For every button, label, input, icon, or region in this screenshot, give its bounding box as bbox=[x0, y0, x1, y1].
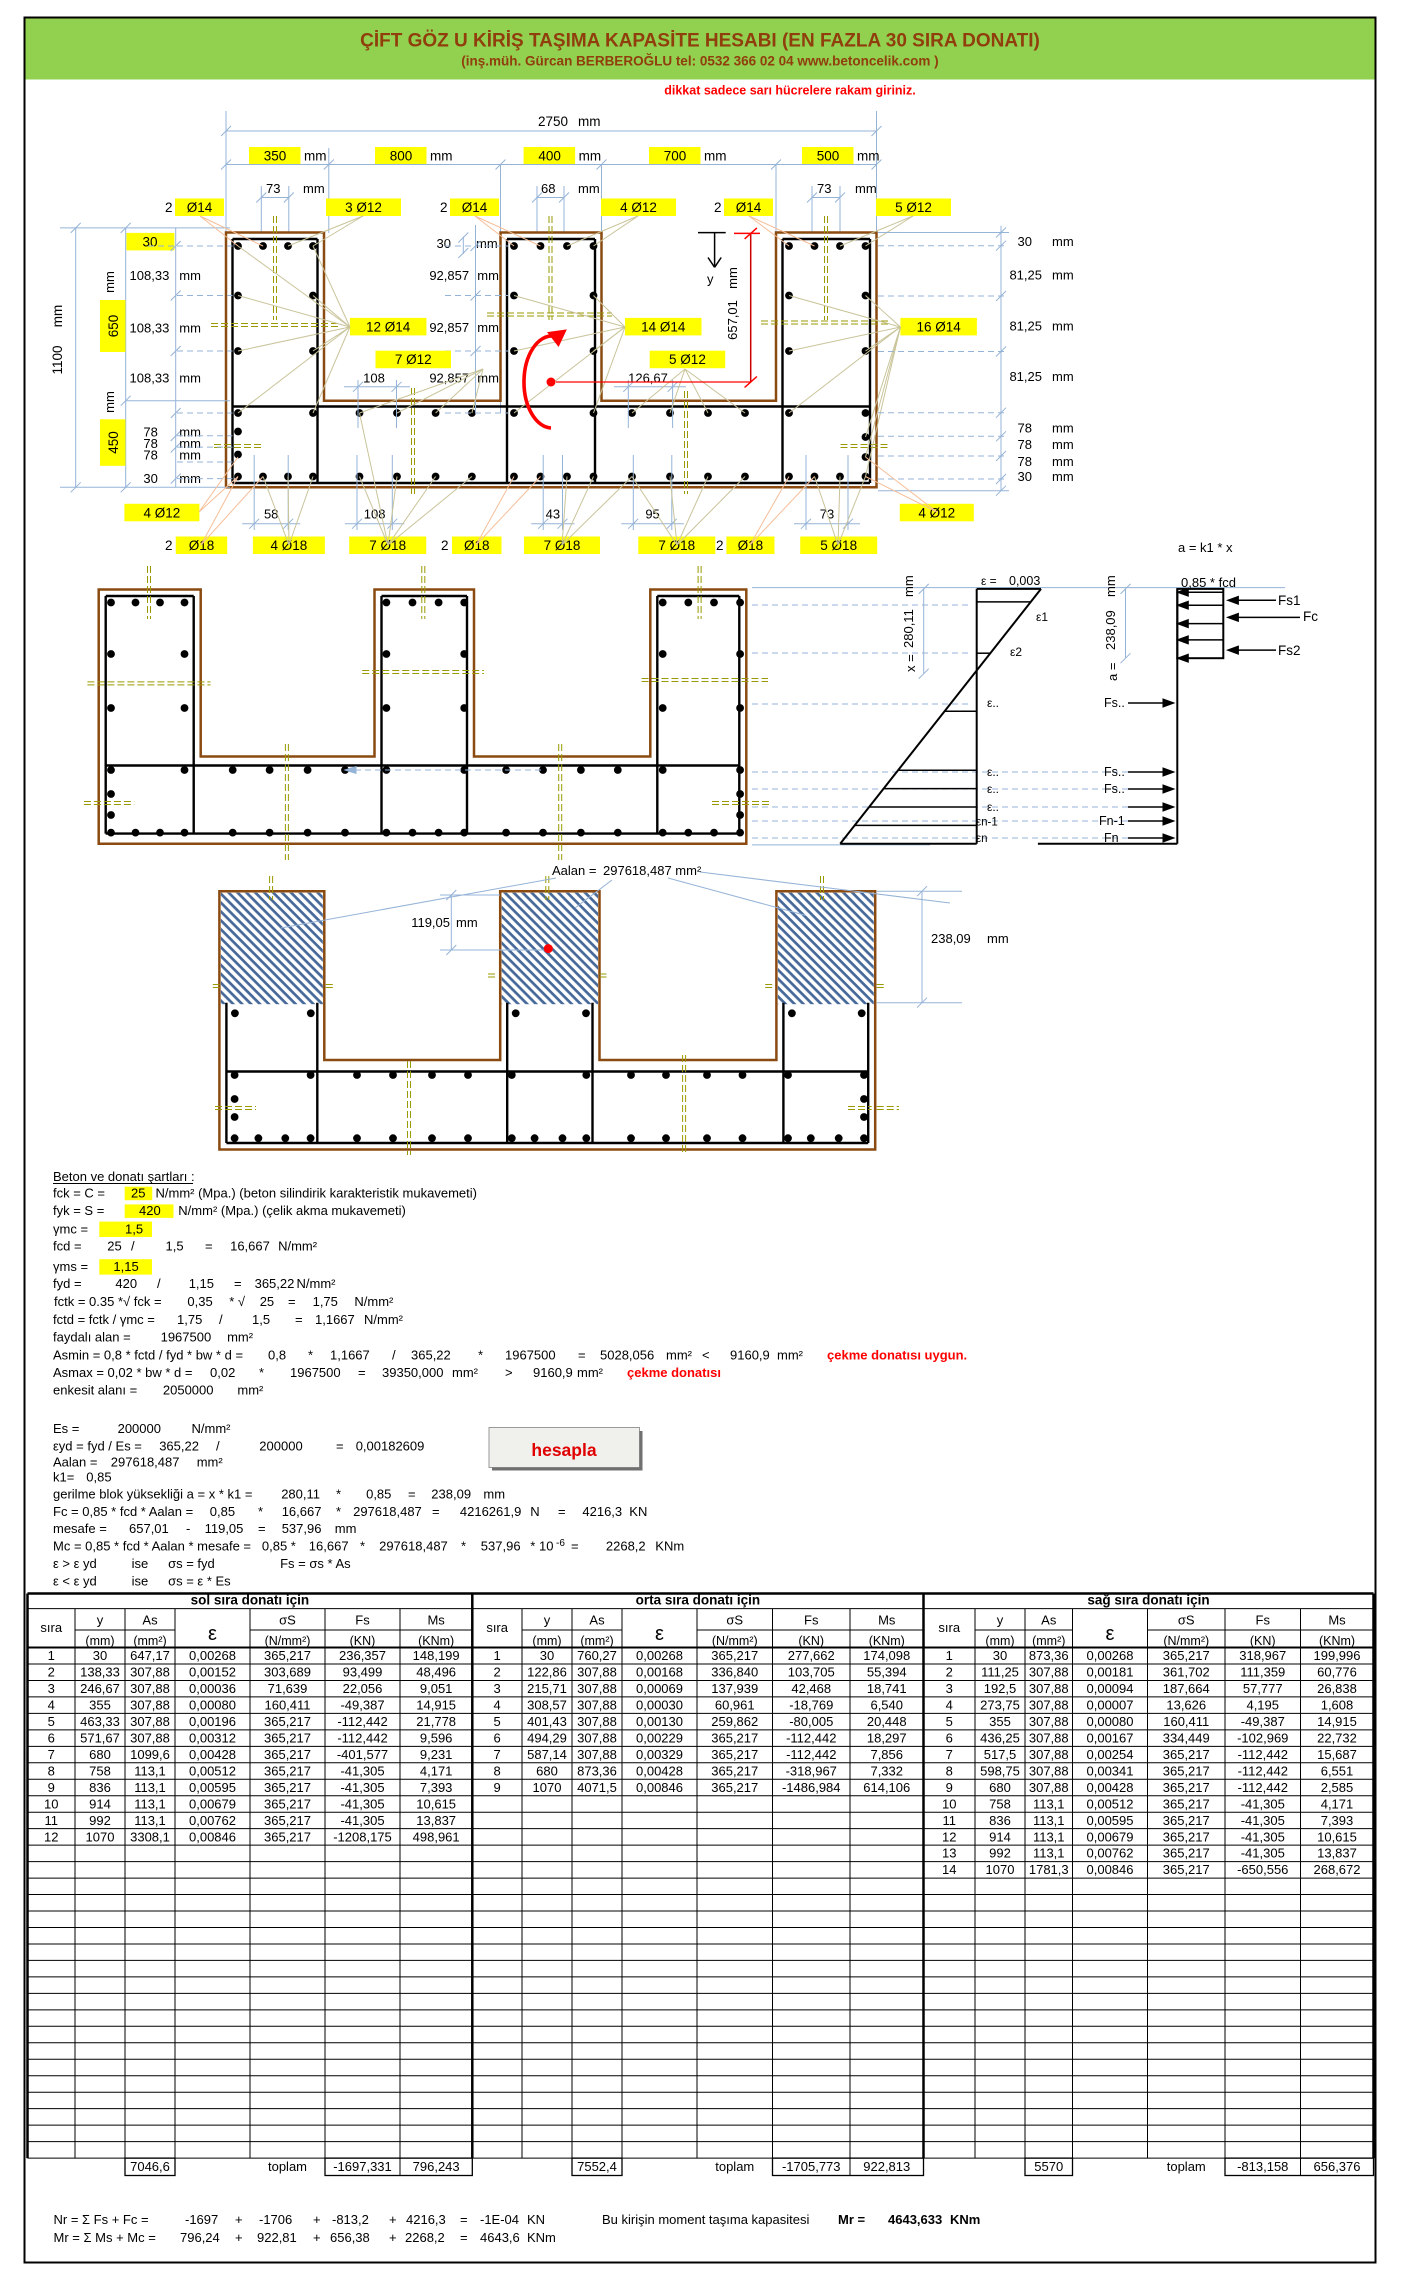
svg-text:537,96: 537,96 bbox=[481, 1539, 521, 1554]
svg-text:+: + bbox=[235, 2230, 243, 2245]
svg-text:39350,000: 39350,000 bbox=[382, 1365, 443, 1380]
svg-text:5 Ø12: 5 Ø12 bbox=[669, 352, 706, 367]
svg-text:2: 2 bbox=[165, 200, 173, 215]
svg-text:1: 1 bbox=[946, 1648, 953, 1663]
svg-text:2: 2 bbox=[441, 538, 449, 553]
svg-text:334,449: 334,449 bbox=[1163, 1730, 1210, 1745]
svg-text:5: 5 bbox=[946, 1714, 953, 1729]
svg-text:92,857: 92,857 bbox=[429, 320, 469, 335]
svg-text:-112,442: -112,442 bbox=[1238, 1747, 1288, 1762]
svg-text:Ms: Ms bbox=[878, 1613, 896, 1628]
svg-text:toplam: toplam bbox=[715, 2159, 754, 2174]
svg-text:246,67: 246,67 bbox=[80, 1681, 120, 1696]
svg-text:(KN): (KN) bbox=[1250, 1634, 1276, 1648]
svg-text:γms =: γms = bbox=[53, 1259, 88, 1274]
svg-text:111,25: 111,25 bbox=[981, 1665, 1019, 1680]
svg-text:Beton ve donatı şartları :: Beton ve donatı şartları : bbox=[53, 1169, 195, 1184]
svg-text:656,38: 656,38 bbox=[330, 2230, 370, 2245]
svg-text:fctd = fctk / γmc =: fctd = fctk / γmc = bbox=[53, 1312, 155, 1327]
svg-text:(mm²): (mm²) bbox=[1032, 1634, 1065, 1648]
svg-text:650: 650 bbox=[106, 315, 121, 338]
svg-text:1070: 1070 bbox=[86, 1829, 115, 1844]
svg-text:365,217: 365,217 bbox=[264, 1780, 311, 1795]
svg-text:236,357: 236,357 bbox=[339, 1648, 386, 1663]
svg-text:Ø18: Ø18 bbox=[464, 538, 490, 553]
svg-text:-41,305: -41,305 bbox=[1241, 1829, 1285, 1844]
svg-text:365,217: 365,217 bbox=[264, 1763, 311, 1778]
svg-text:(N/mm²): (N/mm²) bbox=[265, 1634, 311, 1648]
svg-text:108,33: 108,33 bbox=[130, 268, 170, 283]
svg-text:273,75: 273,75 bbox=[980, 1698, 1020, 1713]
svg-text:0,00130: 0,00130 bbox=[636, 1714, 683, 1729]
svg-text:365,217: 365,217 bbox=[1163, 1813, 1210, 1828]
svg-text:68: 68 bbox=[541, 181, 555, 196]
svg-text:-6: -6 bbox=[556, 1538, 565, 1549]
svg-text:N/mm²: N/mm² bbox=[354, 1294, 394, 1309]
svg-text:914: 914 bbox=[89, 1796, 111, 1811]
svg-text:gerilme blok yüksekliği a =: gerilme blok yüksekliği a = x * k1 = bbox=[53, 1487, 252, 1502]
svg-text:mm: mm bbox=[1052, 454, 1074, 469]
svg-text:-813,2: -813,2 bbox=[332, 2212, 369, 2227]
svg-text:14 Ø14: 14 Ø14 bbox=[641, 319, 686, 334]
svg-text:11: 11 bbox=[943, 1813, 957, 1828]
svg-text:78: 78 bbox=[1018, 437, 1032, 452]
svg-text:N/mm²: N/mm² bbox=[297, 1276, 337, 1291]
svg-text:Fs: Fs bbox=[1256, 1613, 1271, 1628]
svg-text:-41,305: -41,305 bbox=[1241, 1796, 1285, 1811]
svg-text:1967500: 1967500 bbox=[505, 1348, 556, 1363]
svg-text:7: 7 bbox=[946, 1747, 953, 1762]
svg-text:5 Ø18: 5 Ø18 bbox=[820, 538, 857, 553]
svg-text:20,448: 20,448 bbox=[867, 1714, 907, 1729]
svg-text:14: 14 bbox=[942, 1862, 956, 1877]
svg-text:108,33: 108,33 bbox=[130, 370, 170, 385]
svg-text:0,85 * fcd: 0,85 * fcd bbox=[1181, 575, 1236, 590]
svg-text:758: 758 bbox=[89, 1763, 111, 1778]
svg-text:0,00268: 0,00268 bbox=[189, 1648, 236, 1663]
svg-text:113,1: 113,1 bbox=[1033, 1796, 1065, 1811]
svg-text:268,672: 268,672 bbox=[1314, 1862, 1361, 1877]
svg-text:0,00428: 0,00428 bbox=[1087, 1780, 1134, 1795]
svg-text:365,217: 365,217 bbox=[1163, 1648, 1210, 1663]
svg-text:Fs: Fs bbox=[355, 1613, 370, 1628]
svg-text:5570: 5570 bbox=[1034, 2159, 1063, 2174]
svg-text:Ø14: Ø14 bbox=[462, 200, 488, 215]
svg-text:307,88: 307,88 bbox=[130, 1714, 170, 1729]
svg-text:As: As bbox=[1041, 1613, 1057, 1628]
svg-text:13,837: 13,837 bbox=[416, 1813, 456, 1828]
svg-text:Fn: Fn bbox=[1104, 831, 1119, 845]
svg-text:0,85 *: 0,85 * bbox=[262, 1539, 296, 1554]
svg-text:Fc: Fc bbox=[1303, 609, 1318, 624]
svg-text:60,776: 60,776 bbox=[1317, 1665, 1357, 1680]
svg-text:9,596: 9,596 bbox=[420, 1730, 453, 1745]
svg-text:307,88: 307,88 bbox=[1029, 1780, 1069, 1795]
svg-text:103,705: 103,705 bbox=[788, 1665, 835, 1680]
svg-text:KN: KN bbox=[527, 2212, 545, 2227]
svg-text:113,1: 113,1 bbox=[134, 1813, 166, 1828]
svg-text:Ø14: Ø14 bbox=[736, 200, 762, 215]
svg-text:y: y bbox=[97, 1613, 104, 1628]
svg-text:fcd =: fcd = bbox=[53, 1239, 82, 1254]
svg-text:6,551: 6,551 bbox=[1321, 1763, 1354, 1778]
svg-text:mm: mm bbox=[579, 149, 602, 164]
svg-text:0,00512: 0,00512 bbox=[1087, 1796, 1134, 1811]
svg-text:16,667: 16,667 bbox=[309, 1539, 349, 1554]
svg-text:+: + bbox=[235, 2212, 243, 2227]
svg-text:450: 450 bbox=[106, 431, 121, 454]
svg-text:137,939: 137,939 bbox=[711, 1681, 758, 1696]
svg-text:sağ sıra donatı için: sağ sıra donatı için bbox=[1087, 1593, 1209, 1608]
svg-text:0,00341: 0,00341 bbox=[1087, 1763, 1134, 1778]
svg-text:113,1: 113,1 bbox=[134, 1780, 166, 1795]
svg-text:48,496: 48,496 bbox=[416, 1665, 456, 1680]
svg-text:1,75: 1,75 bbox=[313, 1294, 338, 1309]
svg-text:mm: mm bbox=[304, 149, 327, 164]
svg-text:365,217: 365,217 bbox=[1163, 1763, 1210, 1778]
svg-text:238,09: 238,09 bbox=[431, 1487, 471, 1502]
svg-text:365,217: 365,217 bbox=[1163, 1796, 1210, 1811]
svg-text:9160,9: 9160,9 bbox=[533, 1365, 573, 1380]
svg-text:0,00846: 0,00846 bbox=[1087, 1862, 1134, 1877]
svg-text:ε < ε yd: ε < ε yd bbox=[53, 1574, 97, 1589]
svg-text:160,411: 160,411 bbox=[1163, 1714, 1209, 1729]
svg-text:=: = bbox=[578, 1348, 586, 1363]
svg-text:7,393: 7,393 bbox=[1321, 1813, 1354, 1828]
svg-text:mm: mm bbox=[725, 267, 740, 289]
svg-text:259,862: 259,862 bbox=[711, 1714, 758, 1729]
svg-text:0,00007: 0,00007 bbox=[1087, 1698, 1134, 1713]
svg-text:30: 30 bbox=[1018, 469, 1032, 484]
svg-text:ise: ise bbox=[132, 1574, 149, 1589]
svg-text:mm: mm bbox=[477, 320, 499, 335]
svg-text:3 Ø12: 3 Ø12 bbox=[345, 200, 382, 215]
svg-text:3: 3 bbox=[494, 1681, 501, 1696]
svg-text:mm: mm bbox=[1052, 268, 1074, 283]
svg-text:8: 8 bbox=[494, 1763, 501, 1778]
svg-text:922,81: 922,81 bbox=[257, 2230, 297, 2245]
svg-text:=: = bbox=[288, 1294, 296, 1309]
svg-text:4 Ø12: 4 Ø12 bbox=[144, 505, 181, 520]
svg-text:796,24: 796,24 bbox=[180, 2230, 220, 2245]
svg-text:/: / bbox=[157, 1276, 161, 1291]
svg-text:mm: mm bbox=[987, 931, 1009, 946]
svg-text:/: / bbox=[216, 1439, 220, 1454]
svg-text:Es =: Es = bbox=[53, 1421, 79, 1436]
svg-text:KNm: KNm bbox=[950, 2212, 980, 2227]
svg-text:58: 58 bbox=[264, 507, 278, 522]
svg-text:fck = C =: fck = C = bbox=[53, 1186, 105, 1201]
svg-text:0,00036: 0,00036 bbox=[189, 1681, 236, 1696]
svg-text:Aalan =: Aalan = bbox=[552, 863, 596, 878]
svg-text:6,540: 6,540 bbox=[870, 1698, 903, 1713]
svg-text:N/mm²: N/mm² bbox=[192, 1421, 232, 1436]
svg-text:436,25: 436,25 bbox=[980, 1730, 1020, 1745]
svg-text:111,359: 111,359 bbox=[1240, 1665, 1285, 1680]
svg-text:0,00679: 0,00679 bbox=[189, 1796, 236, 1811]
svg-text:0,00846: 0,00846 bbox=[636, 1780, 683, 1795]
svg-text:=: = bbox=[234, 1276, 242, 1291]
svg-text:toplam: toplam bbox=[268, 2159, 307, 2174]
svg-text:78: 78 bbox=[143, 448, 157, 463]
svg-text:mm: mm bbox=[1052, 319, 1074, 334]
svg-text:598,75: 598,75 bbox=[980, 1763, 1020, 1778]
svg-text:y: y bbox=[997, 1613, 1004, 1628]
svg-text:992: 992 bbox=[989, 1846, 1011, 1861]
svg-text:307,88: 307,88 bbox=[577, 1730, 617, 1745]
svg-text:mm: mm bbox=[477, 268, 499, 283]
svg-text:=: = bbox=[205, 1239, 213, 1254]
svg-text:0,00762: 0,00762 bbox=[1087, 1846, 1134, 1861]
svg-text:-1208,175: -1208,175 bbox=[333, 1829, 392, 1844]
svg-text:σS: σS bbox=[279, 1613, 296, 1628]
svg-text:>: > bbox=[505, 1365, 513, 1380]
svg-text:mm²: mm² bbox=[197, 1455, 224, 1470]
svg-text:1,1667: 1,1667 bbox=[330, 1348, 370, 1363]
svg-text:ε1: ε1 bbox=[1036, 610, 1048, 624]
svg-text:355: 355 bbox=[989, 1714, 1011, 1729]
svg-text:mm: mm bbox=[179, 320, 201, 335]
svg-text:2: 2 bbox=[716, 538, 724, 553]
svg-text:*: * bbox=[461, 1539, 466, 1554]
svg-text:55,394: 55,394 bbox=[867, 1665, 907, 1680]
svg-text:138,33: 138,33 bbox=[80, 1665, 120, 1680]
svg-text:+: + bbox=[313, 2230, 321, 2245]
svg-text:k1=: k1= bbox=[53, 1470, 74, 1485]
svg-text:914: 914 bbox=[989, 1829, 1011, 1844]
svg-text:0,003: 0,003 bbox=[1009, 574, 1040, 588]
svg-text:15,687: 15,687 bbox=[1317, 1747, 1357, 1762]
svg-text:187,664: 187,664 bbox=[1163, 1681, 1210, 1696]
svg-text:9: 9 bbox=[946, 1780, 953, 1795]
svg-text:=: = bbox=[571, 1539, 579, 1554]
svg-text:N: N bbox=[530, 1504, 539, 1519]
svg-text:307,88: 307,88 bbox=[577, 1714, 617, 1729]
svg-text:Fs..: Fs.. bbox=[1104, 782, 1125, 796]
svg-text:14,915: 14,915 bbox=[1317, 1714, 1357, 1729]
svg-text:(mm²): (mm²) bbox=[133, 1634, 166, 1648]
svg-text:2: 2 bbox=[440, 200, 448, 215]
svg-text:307,88: 307,88 bbox=[577, 1681, 617, 1696]
svg-text:7,856: 7,856 bbox=[870, 1747, 903, 1762]
svg-text:12: 12 bbox=[44, 1829, 58, 1844]
svg-text:σS: σS bbox=[1178, 1613, 1195, 1628]
svg-text:2050000: 2050000 bbox=[163, 1383, 214, 1398]
svg-text:Nr = Σ Fs + Fc =: Nr = Σ Fs + Fc = bbox=[54, 2212, 149, 2227]
svg-text:500: 500 bbox=[817, 149, 840, 164]
svg-text:-112,442: -112,442 bbox=[786, 1747, 836, 1762]
svg-text:992: 992 bbox=[89, 1813, 111, 1828]
svg-text:760,27: 760,27 bbox=[577, 1648, 617, 1663]
svg-text:365,217: 365,217 bbox=[1163, 1862, 1210, 1877]
svg-text:N/mm² (Mpa.) (çelik akma mukav: N/mm² (Mpa.) (çelik akma mukavemeti) bbox=[178, 1203, 406, 1218]
svg-text:308,57: 308,57 bbox=[527, 1698, 567, 1713]
svg-text:401,43: 401,43 bbox=[527, 1714, 567, 1729]
svg-text:* √: * √ bbox=[229, 1294, 246, 1309]
svg-text:(KNm): (KNm) bbox=[1319, 1634, 1355, 1648]
svg-text:78: 78 bbox=[1018, 421, 1032, 436]
svg-text:836: 836 bbox=[89, 1780, 111, 1795]
svg-text:1,5: 1,5 bbox=[125, 1222, 143, 1237]
svg-text:mm: mm bbox=[430, 149, 453, 164]
svg-text:* 10: * 10 bbox=[530, 1539, 553, 1554]
svg-text:*: * bbox=[258, 1504, 263, 1519]
svg-text:108,33: 108,33 bbox=[130, 320, 170, 335]
svg-text:mm: mm bbox=[1052, 437, 1074, 452]
svg-text:92,857: 92,857 bbox=[429, 371, 469, 386]
svg-text:0,00268: 0,00268 bbox=[636, 1648, 683, 1663]
svg-text:7: 7 bbox=[48, 1747, 55, 1762]
svg-text:mm²: mm² bbox=[666, 1348, 693, 1363]
svg-text:215,71: 215,71 bbox=[527, 1681, 567, 1696]
svg-text:18,297: 18,297 bbox=[867, 1730, 907, 1745]
svg-text:-1705,773: -1705,773 bbox=[782, 2159, 841, 2174]
svg-text:Aalan =: Aalan = bbox=[53, 1455, 97, 1470]
svg-text:365,217: 365,217 bbox=[711, 1763, 758, 1778]
svg-text:ε2: ε2 bbox=[1010, 645, 1022, 659]
svg-text:/: / bbox=[392, 1348, 396, 1363]
svg-text:-49,387: -49,387 bbox=[340, 1698, 384, 1713]
svg-text:ε..: ε.. bbox=[987, 696, 999, 710]
svg-text:365,217: 365,217 bbox=[1163, 1780, 1210, 1795]
svg-text:4216,3: 4216,3 bbox=[582, 1504, 622, 1519]
svg-text:22,056: 22,056 bbox=[343, 1681, 383, 1696]
svg-text:4 Ø12: 4 Ø12 bbox=[918, 505, 955, 520]
svg-text:*: * bbox=[360, 1539, 365, 1554]
svg-text:=: = bbox=[295, 1312, 303, 1327]
svg-text:365,217: 365,217 bbox=[264, 1813, 311, 1828]
svg-text:4,195: 4,195 bbox=[1246, 1698, 1279, 1713]
svg-text:(mm²): (mm²) bbox=[580, 1634, 613, 1648]
svg-text:ε: ε bbox=[208, 1623, 217, 1645]
svg-text:9: 9 bbox=[48, 1780, 55, 1795]
svg-text:57,777: 57,777 bbox=[1243, 1681, 1283, 1696]
svg-text:sıra: sıra bbox=[40, 1620, 62, 1635]
svg-text:Asmin = 0,8 * fctd / fyd * bw: Asmin = 0,8 * fctd / fyd * bw * d = bbox=[53, 1348, 243, 1363]
svg-text:537,96: 537,96 bbox=[282, 1521, 322, 1536]
svg-text:71,639: 71,639 bbox=[268, 1681, 308, 1696]
svg-text:656,376: 656,376 bbox=[1314, 2159, 1361, 2174]
svg-text:/: / bbox=[219, 1312, 223, 1327]
svg-text:1,608: 1,608 bbox=[1321, 1698, 1354, 1713]
svg-text:2,585: 2,585 bbox=[1321, 1780, 1354, 1795]
svg-text:0,00762: 0,00762 bbox=[189, 1813, 236, 1828]
svg-text:sıra: sıra bbox=[486, 1620, 508, 1635]
svg-text:0,00094: 0,00094 bbox=[1087, 1681, 1134, 1696]
svg-text:365,22: 365,22 bbox=[411, 1348, 451, 1363]
svg-text:(KN): (KN) bbox=[350, 1634, 376, 1648]
svg-text:0,35: 0,35 bbox=[187, 1294, 212, 1309]
svg-text:4,171: 4,171 bbox=[420, 1763, 453, 1778]
svg-text:277,662: 277,662 bbox=[788, 1648, 835, 1663]
svg-text:Fn-1: Fn-1 bbox=[1099, 814, 1125, 828]
svg-text:εn-1: εn-1 bbox=[976, 817, 998, 829]
svg-text:mm²: mm² bbox=[227, 1330, 254, 1345]
svg-text:-112,442: -112,442 bbox=[337, 1730, 387, 1745]
svg-text:2: 2 bbox=[946, 1665, 953, 1680]
svg-text:ÇİFT GÖZ U KİRİŞ TAŞIMA KAPASİ: ÇİFT GÖZ U KİRİŞ TAŞIMA KAPASİTE HESABI … bbox=[360, 31, 1040, 52]
svg-text:303,689: 303,689 bbox=[264, 1665, 311, 1680]
svg-text:587,14: 587,14 bbox=[527, 1747, 567, 1762]
svg-text:Fs2: Fs2 bbox=[1278, 643, 1301, 658]
svg-text:307,88: 307,88 bbox=[577, 1698, 617, 1713]
svg-text:Mc = 0,85 * fcd * Aalan * mesa: Mc = 0,85 * fcd * Aalan * mesafe = bbox=[53, 1539, 251, 1554]
svg-text:enkesit alanı =: enkesit alanı = bbox=[53, 1383, 137, 1398]
svg-text:307,88: 307,88 bbox=[1029, 1698, 1069, 1713]
svg-text:-18,769: -18,769 bbox=[789, 1698, 833, 1713]
svg-text:mm: mm bbox=[483, 1487, 505, 1502]
svg-text:873,36: 873,36 bbox=[577, 1763, 617, 1778]
svg-text:=: = bbox=[258, 1521, 266, 1536]
svg-text:22,732: 22,732 bbox=[1317, 1730, 1357, 1745]
svg-text:0,00312: 0,00312 bbox=[189, 1730, 236, 1745]
svg-text:318,967: 318,967 bbox=[1239, 1648, 1286, 1663]
svg-text:0,85: 0,85 bbox=[210, 1504, 235, 1519]
svg-text:0,00229: 0,00229 bbox=[636, 1730, 683, 1745]
svg-text:ε > ε yd: ε > ε yd bbox=[53, 1556, 97, 1571]
svg-text:73: 73 bbox=[817, 181, 831, 196]
svg-text:365,217: 365,217 bbox=[264, 1829, 311, 1844]
svg-text:(KNm): (KNm) bbox=[418, 1634, 454, 1648]
svg-text:mm: mm bbox=[1052, 369, 1074, 384]
svg-text:10,615: 10,615 bbox=[1317, 1829, 1357, 1844]
svg-text:30: 30 bbox=[142, 235, 157, 250]
svg-text:119,05: 119,05 bbox=[411, 915, 450, 930]
svg-text:-1486,984: -1486,984 bbox=[782, 1780, 841, 1795]
svg-text:0,00254: 0,00254 bbox=[1087, 1747, 1134, 1762]
svg-text:ε: ε bbox=[655, 1623, 664, 1645]
svg-text:0,00080: 0,00080 bbox=[1087, 1714, 1134, 1729]
svg-text:1: 1 bbox=[494, 1648, 501, 1663]
svg-text:13,626: 13,626 bbox=[1166, 1698, 1206, 1713]
svg-text:30: 30 bbox=[1018, 234, 1032, 249]
svg-text:+: + bbox=[389, 2230, 397, 2245]
svg-text:365,217: 365,217 bbox=[711, 1780, 758, 1795]
svg-text:=: = bbox=[432, 1504, 440, 1519]
svg-text:1070: 1070 bbox=[533, 1780, 562, 1795]
svg-text:571,67: 571,67 bbox=[80, 1730, 120, 1745]
svg-text:-41,305: -41,305 bbox=[340, 1780, 384, 1795]
svg-text:N/mm² (Mpa.) (beton silindirik: N/mm² (Mpa.) (beton silindirik karakteri… bbox=[156, 1186, 477, 1201]
svg-text:0,00329: 0,00329 bbox=[636, 1747, 683, 1762]
svg-text:Fs..: Fs.. bbox=[1104, 765, 1125, 779]
svg-text:0,85: 0,85 bbox=[366, 1487, 391, 1502]
svg-text:9,051: 9,051 bbox=[420, 1681, 453, 1696]
svg-text:9,231: 9,231 bbox=[420, 1747, 453, 1762]
svg-text:1,75: 1,75 bbox=[177, 1312, 202, 1327]
svg-text:mm: mm bbox=[303, 181, 325, 196]
svg-text:2268,2: 2268,2 bbox=[405, 2230, 445, 2245]
svg-text:2268,2: 2268,2 bbox=[606, 1539, 646, 1554]
svg-text:2: 2 bbox=[494, 1665, 501, 1680]
svg-text:Fs: Fs bbox=[804, 1613, 819, 1628]
svg-text:13,837: 13,837 bbox=[1317, 1846, 1357, 1861]
svg-text:faydalı alan =: faydalı alan = bbox=[53, 1330, 131, 1345]
svg-text:365,217: 365,217 bbox=[264, 1648, 311, 1663]
svg-text:126,67: 126,67 bbox=[628, 371, 668, 386]
svg-text:92,857: 92,857 bbox=[429, 268, 469, 283]
svg-text:0,00080: 0,00080 bbox=[189, 1698, 236, 1713]
svg-text:sol sıra donatı için: sol sıra donatı için bbox=[191, 1593, 310, 1608]
svg-text:-41,305: -41,305 bbox=[1241, 1813, 1285, 1828]
svg-text:836: 836 bbox=[989, 1813, 1011, 1828]
svg-text:fyd =: fyd = bbox=[53, 1276, 82, 1291]
svg-text:Ø18: Ø18 bbox=[738, 538, 764, 553]
svg-text:mm: mm bbox=[179, 448, 201, 463]
svg-text:σS: σS bbox=[726, 1613, 743, 1628]
svg-text:Ø14: Ø14 bbox=[187, 200, 213, 215]
svg-text:0,00196: 0,00196 bbox=[189, 1714, 236, 1729]
